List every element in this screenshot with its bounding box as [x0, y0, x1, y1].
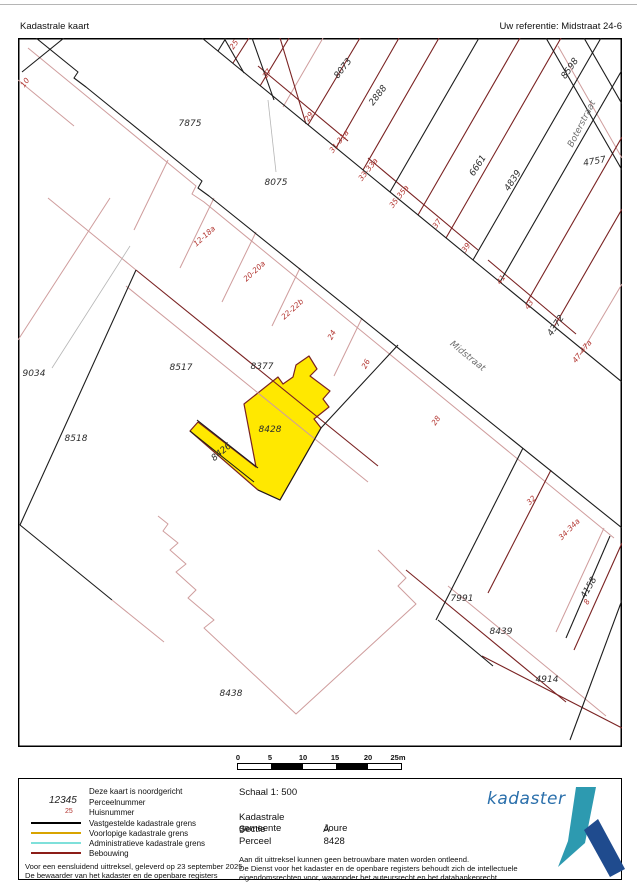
- parcel-number-8518: 8518: [65, 434, 88, 444]
- provisional-boundary-label: Voorlopige kadastrale grens: [89, 829, 188, 838]
- scale-segment-1: [238, 764, 271, 769]
- sectie-label: Sectie: [239, 824, 321, 835]
- parcel-number-7991: 7991: [451, 594, 474, 604]
- house-number-legend-label: Huisnummer: [89, 808, 134, 817]
- provisional-boundary-sample: [31, 828, 81, 834]
- kadaster-logo-mark: [519, 781, 629, 879]
- north-note: Deze kaart is noordgericht: [89, 787, 182, 796]
- scale-segment-3: [303, 764, 336, 769]
- parcel-number-8438: 8438: [220, 689, 243, 699]
- parcel-number-8517: 8517: [170, 363, 193, 373]
- administrative-boundary-label: Administratieve kadastrale grens: [89, 839, 205, 848]
- house-number-sample: 25: [65, 808, 73, 815]
- scale-bar: 0 5 10 15 20 25m: [237, 753, 403, 773]
- perceel-value: 8428: [324, 836, 345, 847]
- perceel-label: Perceel: [239, 836, 321, 847]
- perceel-row: Perceel 8428: [239, 836, 499, 847]
- parcel-number-8439: 8439: [490, 627, 513, 637]
- parcel-number-8377: 8377: [251, 362, 274, 372]
- sectie-row: Sectie A: [239, 824, 499, 835]
- parcel-number-8075: 8075: [265, 178, 288, 188]
- scale-segment-5: [368, 764, 401, 769]
- parcel-number-4914: 4914: [536, 675, 559, 685]
- disclaimer-line3: eigendomsrechten voor, waaronder het aut…: [239, 873, 499, 883]
- scale-tick-25m: 25m: [390, 753, 405, 762]
- building-label: Bebouwing: [89, 849, 129, 858]
- map-container: MidstraatBoterstraat 7875807580732888666…: [18, 38, 622, 747]
- scale-tick-15: 15: [331, 753, 339, 762]
- sectie-value: A: [323, 824, 329, 835]
- logo-bar-shape: [584, 819, 625, 877]
- building-sample: [31, 848, 81, 854]
- scale-segment-4: [336, 764, 369, 769]
- established-boundary-label: Vastgestelde kadastrale grens: [89, 819, 196, 828]
- delivery-note-line2: De bewaarder van het kadaster en de open…: [25, 871, 218, 881]
- scale-label: Schaal 1: 500: [239, 787, 297, 798]
- scale-tick-5: 5: [268, 753, 272, 762]
- scale-tick-10: 10: [299, 753, 307, 762]
- scale-tick-0: 0: [236, 753, 240, 762]
- parcel-number-9034: 9034: [23, 369, 46, 379]
- scale-segment-2: [271, 764, 304, 769]
- administrative-boundary-sample: [31, 838, 81, 844]
- document-title: Kadastrale kaart: [20, 21, 89, 32]
- kadastrale-kaart-page: Kadastrale kaart Uw referentie: Midstraa…: [0, 0, 637, 892]
- parcel-number-sample: 12345: [49, 795, 77, 806]
- page-top-divider: [0, 4, 637, 5]
- parcel-number-legend-label: Perceelnummer: [89, 798, 145, 807]
- footer-panel: Deze kaart is noordgericht 12345 Perceel…: [18, 778, 622, 880]
- parcel-number-8428: 8428: [259, 425, 282, 435]
- parcel-number-7875: 7875: [179, 119, 202, 129]
- scale-bar-segments: [237, 763, 402, 770]
- scale-tick-20: 20: [364, 753, 372, 762]
- cadastral-map: MidstraatBoterstraat 7875807580732888666…: [18, 38, 622, 747]
- reference-text: Uw referentie: Midstraat 24-6: [500, 21, 623, 32]
- established-boundary-sample: [31, 818, 81, 824]
